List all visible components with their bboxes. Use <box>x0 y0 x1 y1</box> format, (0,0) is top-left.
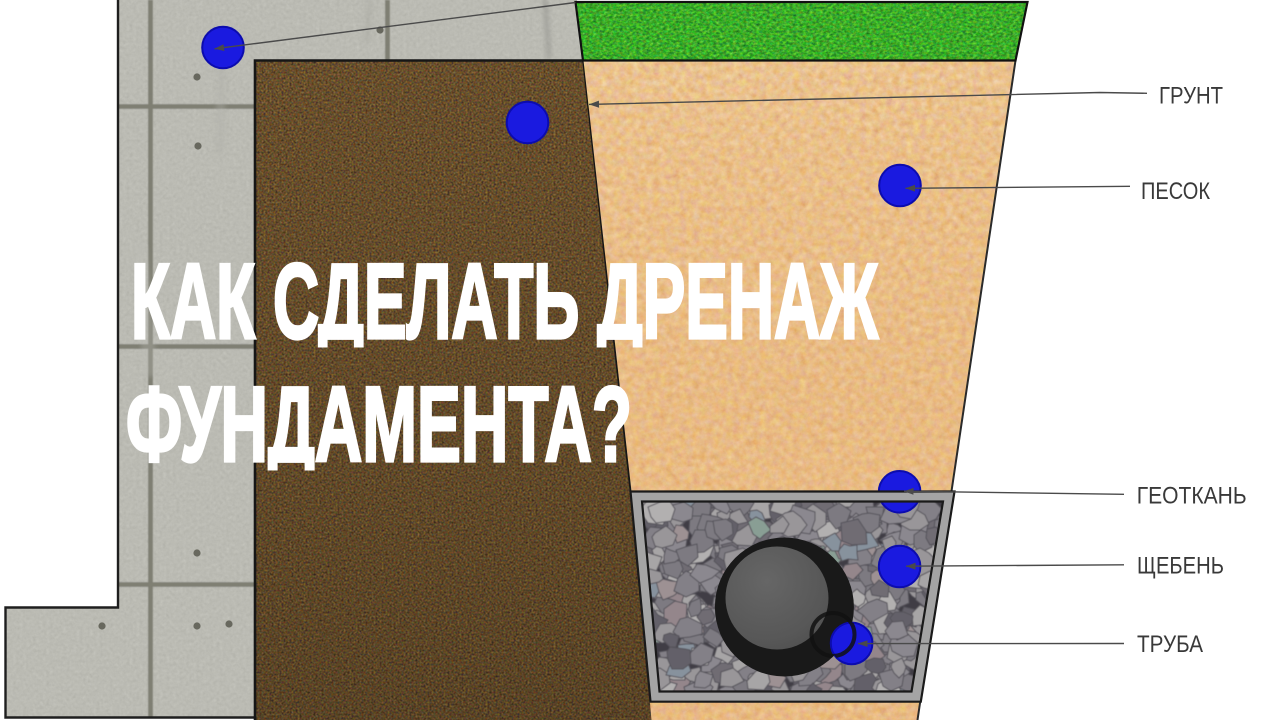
svg-text:ТРУБА: ТРУБА <box>1137 631 1203 658</box>
svg-text:ПЕСОК: ПЕСОК <box>1141 178 1210 205</box>
svg-text:КАК СДЕЛАТЬ ДРЕНАЖ: КАК СДЕЛАТЬ ДРЕНАЖ <box>131 241 879 361</box>
svg-text:ГРУНТ: ГРУНТ <box>1159 83 1223 110</box>
svg-text:ЩЕБЕНЬ: ЩЕБЕНЬ <box>1137 553 1224 580</box>
svg-text:ГЕОТКАНЬ: ГЕОТКАНЬ <box>1137 483 1247 510</box>
svg-text:ФУНДАМЕНТА?: ФУНДАМЕНТА? <box>126 364 632 484</box>
